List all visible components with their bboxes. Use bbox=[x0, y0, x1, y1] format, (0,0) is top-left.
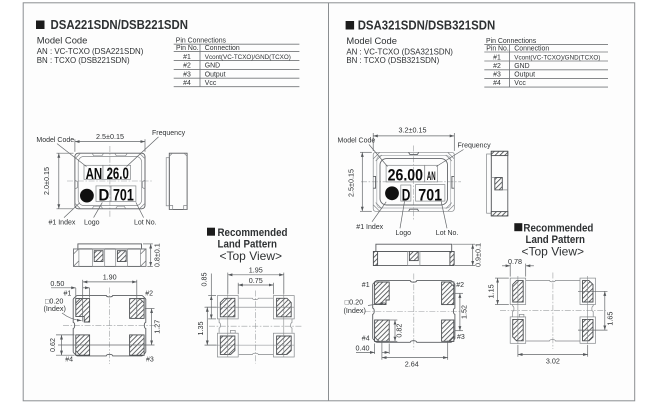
svg-text:3.02: 3.02 bbox=[546, 356, 560, 365]
svg-text:Recommended: Recommended bbox=[523, 222, 593, 234]
svg-text:Connection: Connection bbox=[205, 45, 240, 52]
svg-text:0.62: 0.62 bbox=[48, 338, 57, 352]
svg-text:1.52: 1.52 bbox=[459, 305, 468, 319]
svg-text:2.0±0.15: 2.0±0.15 bbox=[42, 167, 51, 195]
svg-text:0.85: 0.85 bbox=[200, 273, 209, 287]
svg-text:26.00: 26.00 bbox=[388, 166, 423, 185]
svg-text:Output: Output bbox=[205, 71, 226, 78]
svg-text:Logo: Logo bbox=[84, 220, 100, 227]
svg-text:<Top View>: <Top View> bbox=[220, 249, 283, 263]
svg-text:DSA321SDN/DSB321SDN: DSA321SDN/DSB321SDN bbox=[358, 18, 496, 33]
svg-text:701: 701 bbox=[418, 186, 442, 204]
svg-text:Model Code: Model Code bbox=[346, 35, 397, 46]
svg-text:GND: GND bbox=[514, 63, 529, 70]
svg-text:Pin No.: Pin No. bbox=[486, 46, 509, 53]
svg-text:0.9±0.1: 0.9±0.1 bbox=[473, 243, 482, 267]
svg-text:1.27: 1.27 bbox=[152, 320, 161, 334]
svg-text:Frequency: Frequency bbox=[152, 130, 186, 137]
svg-text:701: 701 bbox=[113, 187, 134, 205]
svg-text:#2: #2 bbox=[456, 282, 464, 289]
svg-text:1.90: 1.90 bbox=[103, 273, 117, 282]
svg-text:2.5±0.15: 2.5±0.15 bbox=[346, 169, 355, 197]
svg-text:<Top View>: <Top View> bbox=[522, 244, 585, 258]
svg-text:Pin No.: Pin No. bbox=[176, 45, 199, 52]
svg-text:1.15: 1.15 bbox=[486, 284, 495, 298]
svg-text:#4: #4 bbox=[65, 357, 73, 364]
svg-text:(Index): (Index) bbox=[44, 304, 66, 313]
svg-text:#3: #3 bbox=[183, 71, 191, 78]
svg-text:Lot No.: Lot No. bbox=[134, 220, 157, 227]
svg-text:#3: #3 bbox=[457, 334, 465, 341]
svg-text:Pin Connections: Pin Connections bbox=[176, 38, 227, 45]
svg-text:D: D bbox=[402, 187, 411, 205]
svg-text:0.8±0.1: 0.8±0.1 bbox=[153, 243, 162, 267]
svg-text:#1 Index: #1 Index bbox=[356, 224, 383, 231]
svg-text:#1: #1 bbox=[64, 291, 72, 298]
svg-text:#4: #4 bbox=[493, 80, 501, 87]
svg-text:3.2±0.15: 3.2±0.15 bbox=[399, 126, 427, 135]
svg-text:Model Code: Model Code bbox=[338, 138, 376, 145]
svg-text:D: D bbox=[99, 187, 110, 205]
svg-text:BN : TCXO (DSB321SDN): BN : TCXO (DSB321SDN) bbox=[346, 56, 439, 65]
svg-text:GND: GND bbox=[205, 63, 220, 70]
svg-text:Vcc: Vcc bbox=[205, 80, 217, 87]
svg-text:0.75: 0.75 bbox=[249, 276, 263, 285]
svg-text:AN: AN bbox=[86, 166, 103, 183]
svg-text:1.65: 1.65 bbox=[605, 312, 614, 326]
svg-text:#1: #1 bbox=[493, 54, 501, 61]
svg-text:Lot No.: Lot No. bbox=[436, 230, 459, 237]
svg-text:1.35: 1.35 bbox=[196, 322, 205, 336]
svg-text:Recommended: Recommended bbox=[218, 227, 288, 239]
svg-text:Output: Output bbox=[514, 72, 535, 79]
svg-text:#4: #4 bbox=[183, 80, 191, 87]
svg-text:Logo: Logo bbox=[396, 230, 412, 237]
svg-text:#3: #3 bbox=[493, 72, 501, 79]
svg-text:#3: #3 bbox=[146, 357, 154, 364]
svg-text:0.50: 0.50 bbox=[50, 279, 64, 288]
svg-text:Pin Connections: Pin Connections bbox=[486, 38, 537, 45]
svg-text:0.78: 0.78 bbox=[508, 257, 522, 266]
svg-text:#1: #1 bbox=[362, 282, 370, 289]
svg-text:26.0: 26.0 bbox=[107, 165, 129, 183]
svg-text:#2: #2 bbox=[183, 63, 191, 70]
svg-text:2.5±0.15: 2.5±0.15 bbox=[96, 132, 124, 141]
svg-text:#4: #4 bbox=[362, 336, 370, 343]
svg-text:AN: AN bbox=[427, 169, 436, 183]
svg-text:#2: #2 bbox=[493, 63, 501, 70]
svg-text:Vcont(VC-TCXO)/GND(TCXO): Vcont(VC-TCXO)/GND(TCXO) bbox=[514, 54, 600, 61]
svg-text:1.95: 1.95 bbox=[249, 266, 263, 275]
svg-text:Frequency: Frequency bbox=[458, 143, 492, 150]
svg-text:Connection: Connection bbox=[514, 46, 549, 53]
svg-text:#1 Index: #1 Index bbox=[49, 220, 76, 227]
svg-text:0.40: 0.40 bbox=[356, 344, 370, 353]
svg-text:Vcc: Vcc bbox=[514, 80, 526, 87]
svg-text:Model Code: Model Code bbox=[36, 137, 74, 144]
svg-text:0.82: 0.82 bbox=[395, 324, 404, 338]
svg-text:BN : TCXO (DSB221SDN): BN : TCXO (DSB221SDN) bbox=[37, 56, 130, 65]
svg-text:Vcont(VC-TCXO)/GND(TCXO): Vcont(VC-TCXO)/GND(TCXO) bbox=[205, 54, 291, 61]
svg-text:(Index): (Index) bbox=[344, 306, 366, 315]
svg-text:#1: #1 bbox=[183, 54, 191, 61]
svg-text:DSA221SDN/DSB221SDN: DSA221SDN/DSB221SDN bbox=[51, 17, 189, 32]
svg-text:2.64: 2.64 bbox=[405, 360, 419, 369]
svg-text:Model Code: Model Code bbox=[37, 35, 88, 46]
svg-text:#2: #2 bbox=[145, 291, 153, 298]
